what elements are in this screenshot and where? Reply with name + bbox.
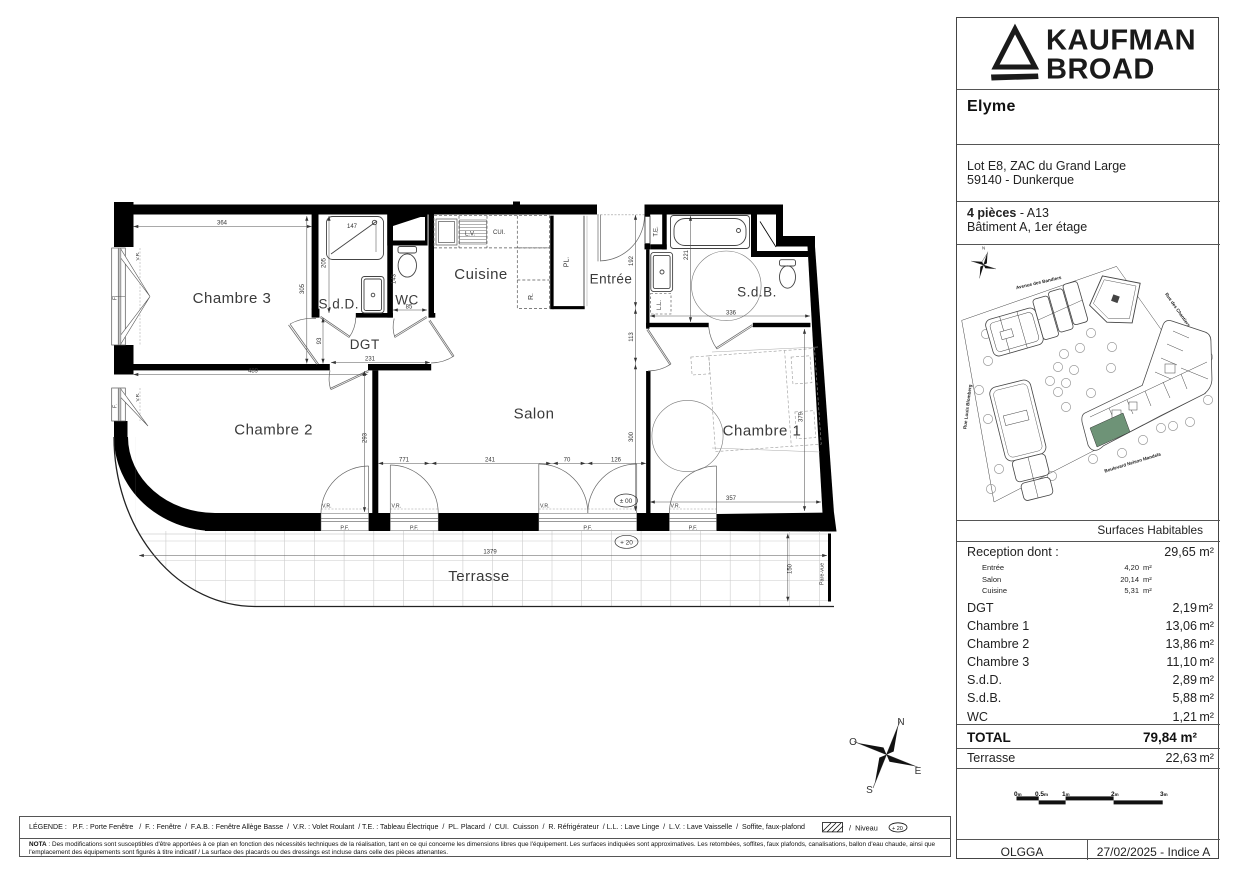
svg-text:N: N (897, 717, 904, 728)
svg-text:± 00: ± 00 (620, 498, 633, 505)
svg-text:Boulevard Nelson Mandela: Boulevard Nelson Mandela (1104, 451, 1162, 473)
svg-text:+ 20: + 20 (892, 826, 903, 832)
svg-text:1379: 1379 (483, 550, 497, 556)
svg-text:126: 126 (611, 458, 622, 464)
svg-text:L.V.: L.V. (465, 232, 475, 238)
svg-text:Rue Louis Blomberg: Rue Louis Blomberg (962, 384, 972, 429)
svg-text:241: 241 (485, 458, 496, 464)
svg-text:V.R.: V.R. (135, 393, 141, 402)
svg-text:Chambre 1: Chambre 1 (723, 423, 802, 440)
svg-text:150: 150 (788, 563, 794, 574)
svg-text:CUI.: CUI. (493, 230, 505, 236)
svg-text:300: 300 (629, 431, 635, 442)
svg-text:Salon: Salon (514, 406, 555, 423)
svg-text:S.d.B.: S.d.B. (737, 285, 777, 300)
svg-text:V.R.: V.R. (392, 504, 402, 510)
svg-text:771: 771 (399, 458, 410, 464)
svg-text:Entrée: Entrée (590, 272, 633, 287)
svg-text:231: 231 (365, 357, 376, 363)
svg-text:357: 357 (726, 496, 737, 502)
svg-text:113: 113 (629, 332, 635, 342)
svg-text:364: 364 (217, 221, 228, 227)
svg-text:205: 205 (322, 257, 328, 268)
svg-text:379: 379 (799, 411, 805, 422)
svg-text:E: E (915, 766, 922, 777)
svg-text:+ 20: + 20 (620, 539, 633, 546)
svg-text:93: 93 (317, 337, 323, 344)
svg-text:P.F.: P.F. (583, 526, 592, 532)
svg-text:P.F.: P.F. (689, 526, 698, 532)
svg-text:3m: 3m (1160, 791, 1168, 798)
svg-text:DGT: DGT (350, 337, 380, 352)
svg-text:R.: R. (528, 293, 535, 300)
svg-text:P.F.: P.F. (340, 526, 349, 532)
svg-text:70: 70 (564, 458, 571, 464)
svg-text:O: O (849, 737, 857, 748)
svg-text:V.R.: V.R. (671, 504, 681, 510)
svg-text:V.R.: V.R. (540, 504, 550, 510)
svg-text:489: 489 (248, 369, 259, 375)
svg-text:F.: F. (113, 404, 119, 408)
svg-text:PL.: PL. (564, 257, 571, 268)
svg-text:L.L.: L.L. (657, 300, 663, 310)
svg-text:143: 143 (392, 273, 398, 284)
svg-text:Terrasse: Terrasse (448, 568, 510, 585)
svg-text:P.F.: P.F. (410, 526, 419, 532)
svg-text:Chambre 3: Chambre 3 (193, 290, 272, 307)
svg-text:BROAD: BROAD (1046, 54, 1155, 86)
svg-text:WC: WC (395, 293, 419, 308)
svg-text:305: 305 (300, 283, 306, 294)
svg-text:V.R.: V.R. (135, 252, 141, 261)
svg-text:S: S (866, 785, 873, 796)
svg-text:/ Niveau: / Niveau (849, 823, 878, 832)
svg-text:S.d.D.: S.d.D. (318, 297, 359, 312)
svg-text:Pare-vue: Pare-vue (820, 563, 826, 585)
svg-text:N: N (982, 246, 985, 251)
svg-text:293: 293 (363, 432, 369, 443)
svg-text:T.E.: T.E. (654, 226, 660, 237)
svg-text:F.: F. (113, 296, 119, 300)
svg-text:336: 336 (726, 311, 737, 317)
svg-text:147: 147 (347, 224, 358, 230)
svg-text:Cuisine: Cuisine (454, 266, 508, 283)
svg-text:Chambre 2: Chambre 2 (234, 422, 313, 439)
svg-text:KAUFMAN: KAUFMAN (1046, 25, 1196, 57)
svg-text:V.R.: V.R. (322, 504, 332, 510)
svg-text:221: 221 (684, 249, 690, 260)
svg-text:192: 192 (629, 255, 635, 266)
